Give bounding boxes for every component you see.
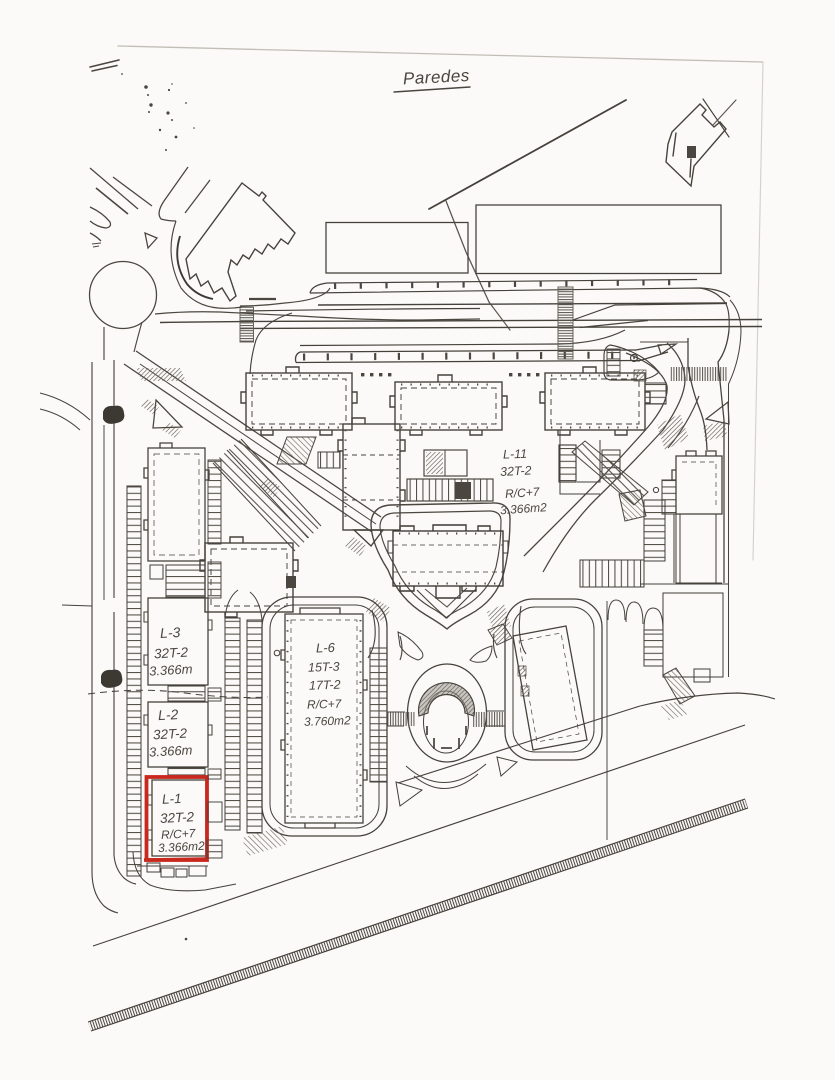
svg-text:Paredes: Paredes bbox=[403, 66, 471, 88]
svg-text:32T-2: 32T-2 bbox=[160, 809, 195, 826]
svg-text:15T-3: 15T-3 bbox=[308, 660, 340, 675]
svg-text:3.366m2: 3.366m2 bbox=[158, 839, 206, 855]
svg-text:32T-2: 32T-2 bbox=[500, 463, 532, 479]
svg-text:17T-2: 17T-2 bbox=[309, 678, 341, 693]
svg-text:32T-2: 32T-2 bbox=[154, 645, 189, 662]
svg-text:3.366m: 3.366m bbox=[149, 742, 193, 759]
svg-text:L-11: L-11 bbox=[503, 447, 528, 462]
svg-text:3.760m2: 3.760m2 bbox=[304, 713, 351, 729]
svg-text:R/C+7: R/C+7 bbox=[505, 485, 542, 501]
svg-text:32T-2: 32T-2 bbox=[153, 726, 188, 743]
svg-text:L-3: L-3 bbox=[160, 624, 181, 641]
svg-text:L-1: L-1 bbox=[162, 791, 182, 807]
svg-text:L-2: L-2 bbox=[158, 706, 179, 723]
svg-text:L-6: L-6 bbox=[316, 640, 336, 656]
svg-text:3.366m2: 3.366m2 bbox=[500, 500, 548, 517]
svg-text:3.366m: 3.366m bbox=[149, 661, 193, 678]
svg-text:R/C+7: R/C+7 bbox=[307, 697, 343, 712]
